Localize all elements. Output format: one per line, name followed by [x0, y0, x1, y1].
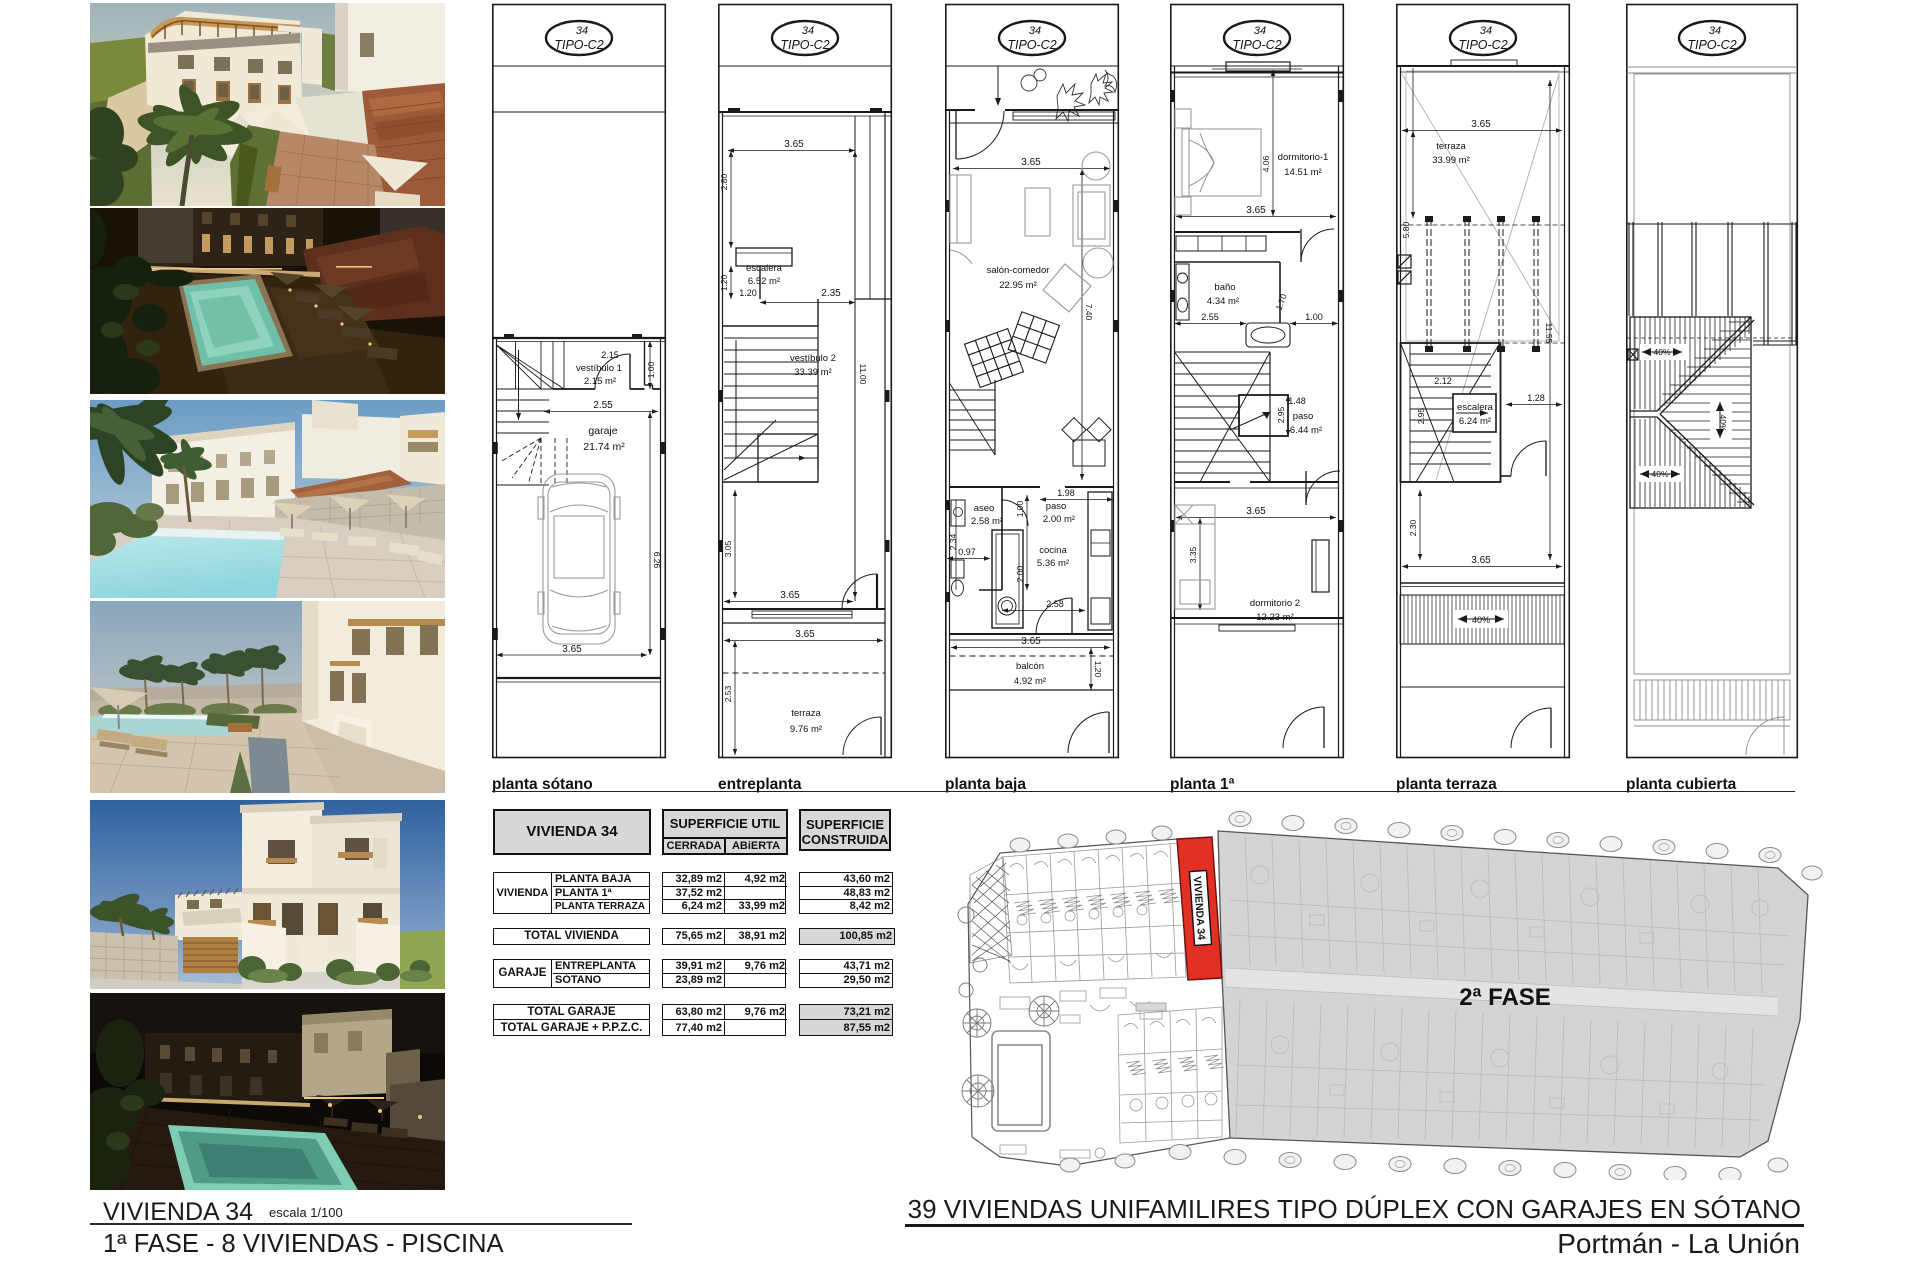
svg-text:1.00: 1.00: [646, 361, 656, 378]
svg-text:6.52 m²: 6.52 m²: [748, 276, 780, 287]
svg-text:escalera: escalera: [1457, 402, 1494, 413]
svg-text:6.44 m²: 6.44 m²: [1290, 425, 1322, 436]
svg-text:14.51 m²: 14.51 m²: [1284, 167, 1322, 178]
svg-text:6.26: 6.26: [652, 552, 662, 569]
svg-text:TIPO-C2: TIPO-C2: [780, 38, 829, 52]
svg-text:cocina: cocina: [1039, 545, 1067, 556]
svg-text:3.65: 3.65: [1246, 205, 1266, 216]
svg-text:2.12: 2.12: [1434, 376, 1452, 386]
svg-text:34: 34: [1709, 25, 1721, 37]
svg-text:vestíbulo 1: vestíbulo 1: [576, 363, 622, 374]
svg-text:terraza: terraza: [1436, 141, 1466, 152]
svg-text:21.74 m²: 21.74 m²: [583, 441, 625, 453]
svg-text:40%: 40%: [1472, 615, 1490, 625]
svg-text:TIPO-C2: TIPO-C2: [1458, 38, 1507, 52]
svg-text:paso: paso: [1293, 411, 1314, 422]
svg-text:TIPO-C2: TIPO-C2: [1232, 38, 1281, 52]
svg-text:1.98: 1.98: [1057, 488, 1075, 498]
svg-text:11.55: 11.55: [1544, 323, 1554, 344]
svg-text:1.48: 1.48: [1288, 396, 1306, 406]
svg-text:vestíbulo 2: vestíbulo 2: [790, 353, 836, 364]
svg-text:1.00: 1.00: [1015, 500, 1025, 517]
svg-text:TIPO-C2: TIPO-C2: [554, 38, 603, 52]
svg-text:3.65: 3.65: [1471, 119, 1491, 130]
svg-text:dormitorio 2: dormitorio 2: [1250, 598, 1300, 609]
svg-text:2.95: 2.95: [1416, 407, 1426, 424]
svg-text:2.53: 2.53: [723, 685, 733, 702]
svg-text:2.55: 2.55: [1201, 312, 1219, 322]
svg-text:3.65: 3.65: [1021, 157, 1041, 168]
svg-text:1.20: 1.20: [739, 288, 757, 298]
svg-text:aseo: aseo: [974, 503, 995, 514]
svg-text:4.06: 4.06: [1261, 155, 1271, 172]
svg-text:1.70: 1.70: [1274, 292, 1289, 311]
svg-text:40%: 40%: [1653, 347, 1670, 357]
svg-text:40%: 40%: [1651, 469, 1668, 479]
svg-text:3.65: 3.65: [1471, 555, 1491, 566]
svg-text:12.23 m²: 12.23 m²: [1256, 612, 1294, 623]
svg-text:34: 34: [576, 25, 588, 37]
svg-text:4.34 m²: 4.34 m²: [1207, 296, 1239, 307]
svg-text:5.80: 5.80: [1401, 221, 1411, 238]
svg-text:2.95: 2.95: [1276, 406, 1286, 423]
svg-text:2.00: 2.00: [1015, 565, 1025, 582]
svg-text:34: 34: [802, 25, 814, 37]
svg-text:34: 34: [1480, 25, 1492, 37]
svg-text:dormitorio-1: dormitorio-1: [1278, 152, 1329, 163]
svg-text:3.65: 3.65: [780, 590, 800, 601]
svg-text:1.20: 1.20: [719, 274, 729, 291]
svg-text:TIPO-C2: TIPO-C2: [1687, 38, 1736, 52]
svg-text:11.00: 11.00: [858, 364, 868, 385]
svg-text:TIPO-C2: TIPO-C2: [1007, 38, 1056, 52]
svg-text:2.58 m²: 2.58 m²: [971, 516, 1003, 527]
svg-text:escalera: escalera: [746, 263, 783, 274]
svg-text:7.40: 7.40: [1084, 304, 1094, 321]
svg-text:1.20: 1.20: [1093, 661, 1103, 678]
svg-text:3.65: 3.65: [1246, 506, 1266, 517]
svg-text:garaje: garaje: [588, 425, 617, 437]
svg-text:baño: baño: [1214, 282, 1235, 293]
svg-text:2.30: 2.30: [1408, 519, 1418, 536]
svg-text:4.92 m²: 4.92 m²: [1014, 676, 1046, 687]
svg-text:2.55: 2.55: [593, 400, 613, 411]
svg-text:33.99 m²: 33.99 m²: [1432, 155, 1470, 166]
svg-text:3.65: 3.65: [784, 139, 804, 150]
svg-text:2.00 m²: 2.00 m²: [1043, 514, 1075, 525]
svg-text:3.65: 3.65: [1021, 636, 1041, 647]
svg-text:3.65: 3.65: [562, 644, 582, 655]
svg-text:2.15: 2.15: [601, 350, 619, 360]
svg-text:3.05: 3.05: [723, 540, 733, 557]
svg-text:40%: 40%: [1718, 414, 1728, 431]
svg-text:salón-comedor: salón-comedor: [987, 265, 1050, 276]
svg-text:2.34: 2.34: [948, 533, 958, 550]
svg-text:1.28: 1.28: [1527, 393, 1545, 403]
svg-text:2.35: 2.35: [821, 288, 841, 299]
svg-text:5.36 m²: 5.36 m²: [1037, 558, 1069, 569]
svg-text:34: 34: [1254, 25, 1266, 37]
svg-text:6.24 m²: 6.24 m²: [1459, 416, 1491, 427]
svg-text:9.76 m²: 9.76 m²: [790, 724, 822, 735]
svg-text:balcón: balcón: [1016, 661, 1044, 672]
svg-text:2.58: 2.58: [1046, 599, 1064, 609]
svg-text:3.65: 3.65: [795, 629, 815, 640]
svg-text:2.15 m²: 2.15 m²: [584, 376, 616, 387]
svg-text:0.97: 0.97: [958, 547, 976, 557]
svg-text:1.00: 1.00: [1305, 312, 1323, 322]
svg-text:paso: paso: [1046, 501, 1067, 512]
svg-text:2ª FASE: 2ª FASE: [1459, 984, 1551, 1011]
svg-text:33.39 m²: 33.39 m²: [794, 367, 832, 378]
svg-text:22.95 m²: 22.95 m²: [999, 280, 1037, 291]
svg-text:2.80: 2.80: [719, 173, 729, 190]
svg-text:34: 34: [1029, 25, 1041, 37]
svg-text:3.35: 3.35: [1188, 546, 1198, 563]
svg-text:terraza: terraza: [791, 708, 821, 719]
